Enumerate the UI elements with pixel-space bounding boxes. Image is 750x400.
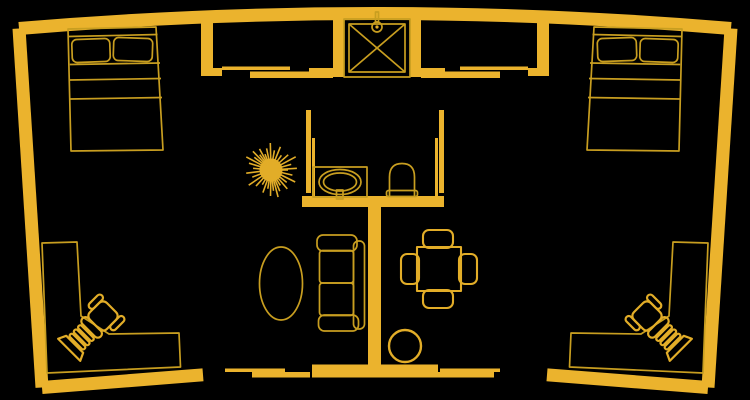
- headboard: [593, 35, 682, 37]
- wall-left: [19, 29, 42, 388]
- wall-bottom-left: [42, 375, 203, 388]
- dining-set: [401, 230, 477, 308]
- office-nook-left: [42, 242, 181, 373]
- sliding-door-bottom-left: [225, 369, 310, 378]
- wall-right: [708, 29, 731, 388]
- double-bed-right: [587, 27, 682, 151]
- sofa: [317, 235, 365, 331]
- sliding-door-bottom-right: [436, 369, 500, 378]
- shower-wall-right: [410, 13, 421, 77]
- sofa-armrest: [317, 235, 357, 251]
- chair-armrest: [646, 293, 663, 310]
- potted-plant: [246, 143, 297, 197]
- sofa-cushion: [320, 283, 354, 316]
- pillow: [72, 38, 111, 62]
- wall-bottom-right: [547, 375, 708, 388]
- chair-armrest: [624, 315, 641, 332]
- round-stool: [389, 330, 421, 362]
- central-wall: [368, 202, 381, 370]
- pillow: [597, 37, 637, 61]
- partition-left-foot: [213, 68, 222, 76]
- dining-chair: [423, 230, 453, 248]
- headboard: [69, 35, 158, 37]
- square-dining-table: [417, 247, 461, 291]
- double-bed-left: [68, 27, 163, 151]
- partition-left: [201, 16, 213, 76]
- pillow: [113, 37, 153, 61]
- chair-armrest: [87, 293, 104, 310]
- office-nook-right: [570, 242, 709, 373]
- sliding-door-top-left: [222, 67, 322, 79]
- office-chair-right: [624, 293, 694, 363]
- chair-armrest: [109, 315, 126, 332]
- pillow: [640, 38, 679, 62]
- floor-plan: [0, 0, 750, 400]
- pocket-door-bathroom-right: [435, 110, 444, 197]
- partition-right: [537, 16, 549, 76]
- sofa-armrest: [319, 315, 359, 331]
- vanity-sink: [313, 167, 367, 199]
- oval-coffee-table: [260, 247, 303, 320]
- office-chair-left: [56, 293, 126, 363]
- partition-right-foot: [528, 68, 537, 76]
- dining-chair: [423, 290, 453, 308]
- toilet: [387, 164, 418, 197]
- sofa-cushion: [320, 251, 354, 284]
- shower-stall: [344, 12, 410, 77]
- shower-wall-left: [333, 13, 344, 77]
- floor-plan-image: [0, 0, 750, 400]
